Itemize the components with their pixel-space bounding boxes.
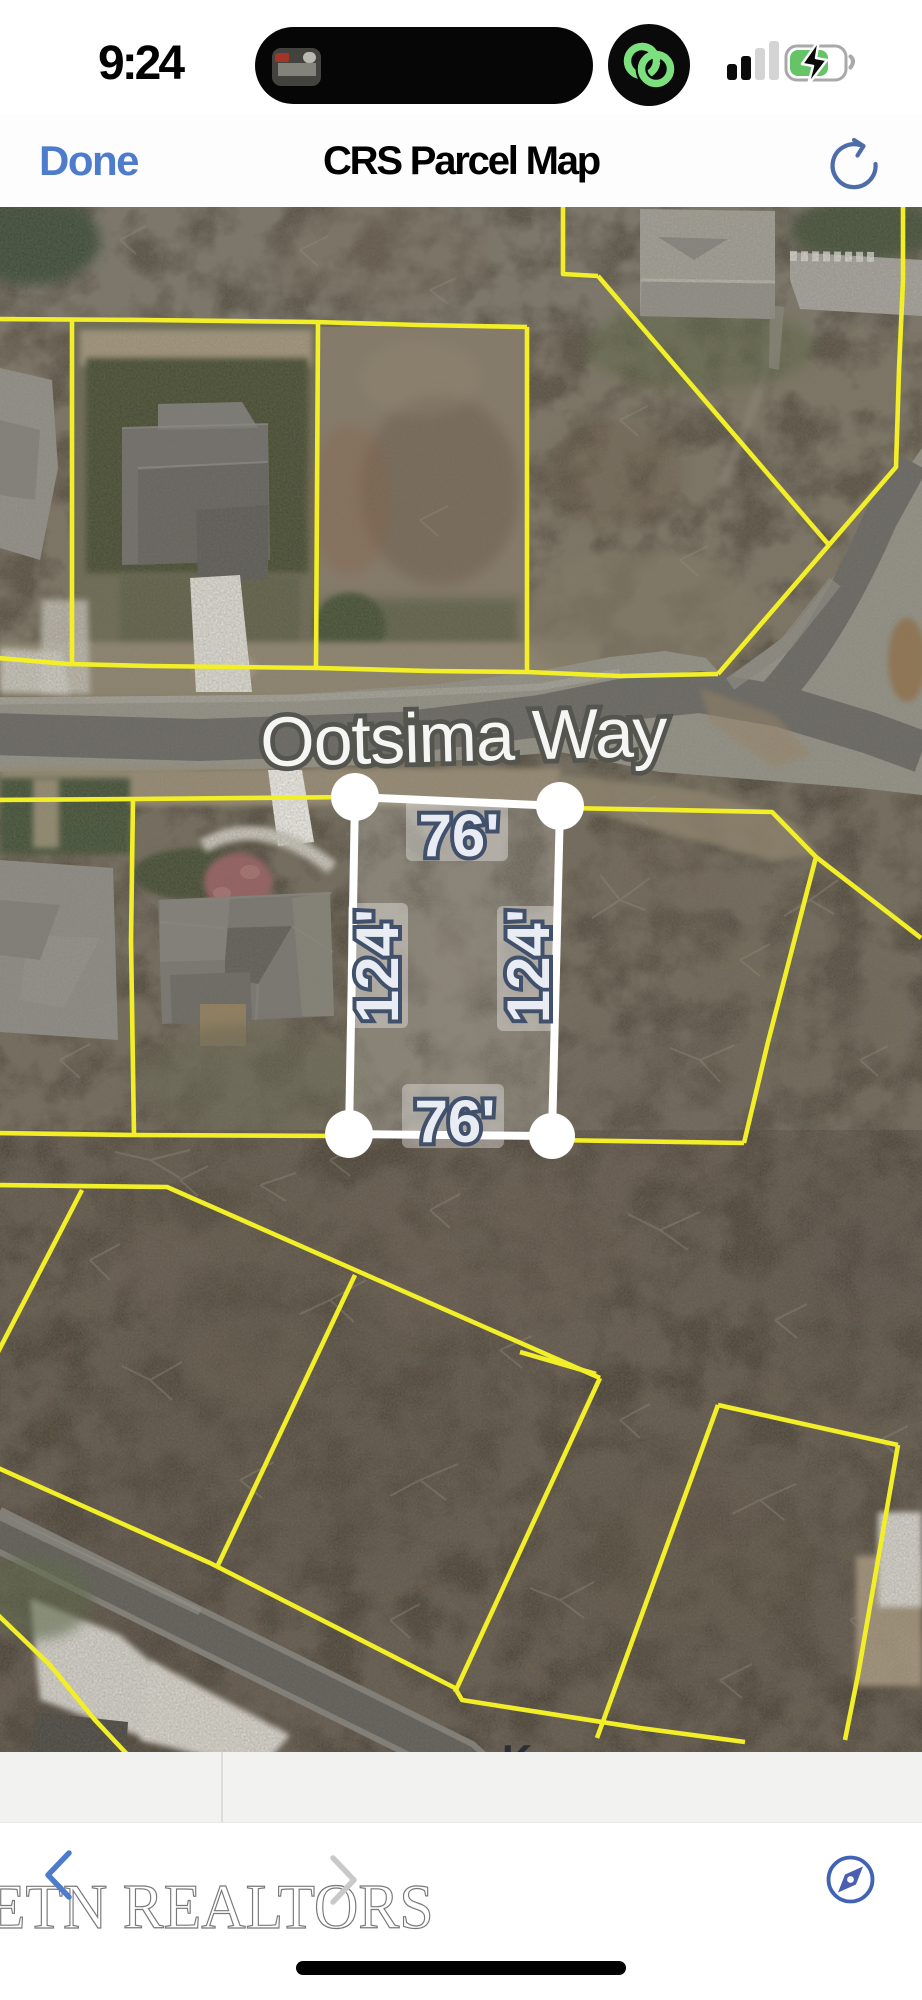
svg-text:76': 76' [418, 802, 499, 869]
svg-text:Ootsima Way: Ootsima Way [259, 693, 668, 782]
svg-text:76': 76' [414, 1088, 495, 1155]
svg-text:124': 124' [344, 909, 411, 1023]
svg-text:K: K [502, 1736, 532, 1752]
svg-text:124': 124' [495, 909, 562, 1023]
